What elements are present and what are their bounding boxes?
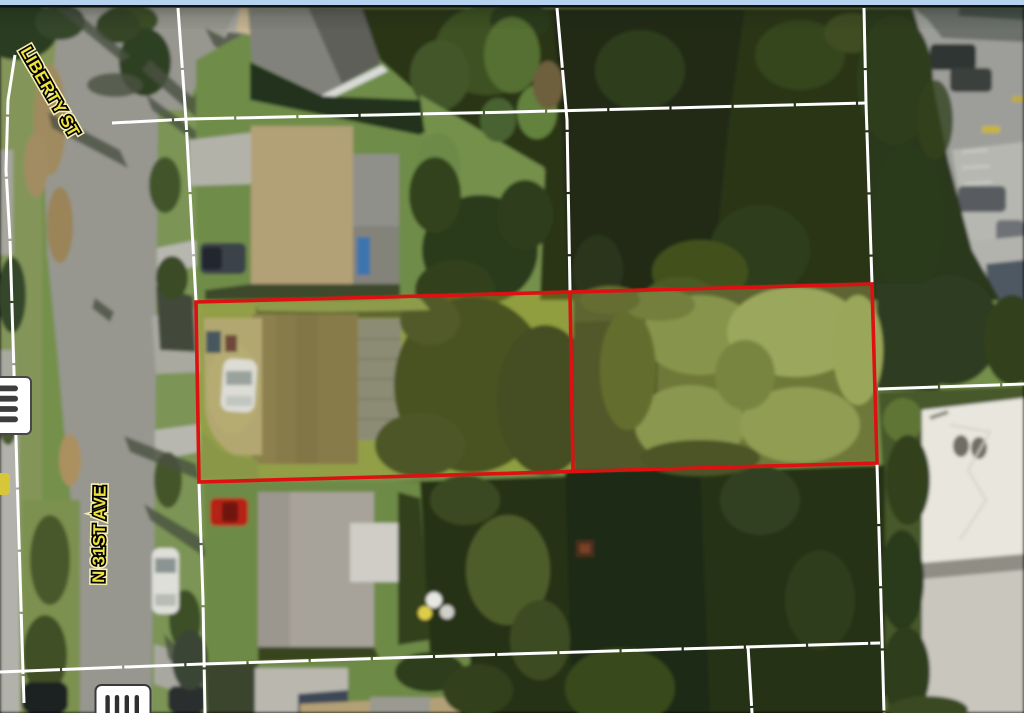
svg-text:N 31ST AVE: N 31ST AVE — [89, 485, 110, 583]
